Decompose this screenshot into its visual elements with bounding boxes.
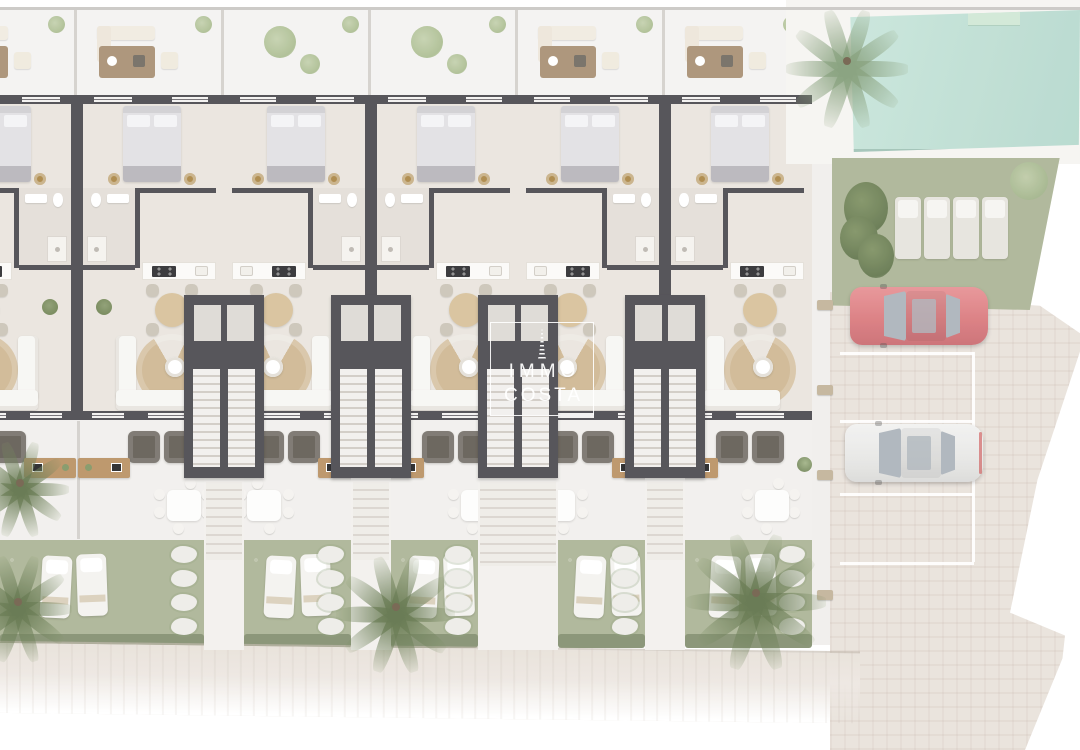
lawn-pad — [982, 197, 1008, 259]
bed-blanket — [561, 166, 619, 182]
palm-tree — [0, 555, 70, 650]
terrace-chair — [577, 507, 588, 518]
sliding-door — [0, 413, 6, 418]
bed-blanket — [123, 166, 181, 182]
terrace-chair — [448, 489, 459, 500]
terrace-armchair — [716, 431, 748, 463]
shrub — [195, 16, 212, 33]
double-bed — [123, 106, 181, 182]
dining-table — [743, 293, 777, 327]
double-bed — [267, 106, 325, 182]
cooktop — [446, 266, 470, 277]
stair-flight — [634, 369, 661, 467]
lawn-pad — [953, 197, 979, 259]
coffee-table — [263, 357, 283, 377]
terrace-armchair — [288, 431, 320, 463]
bed-blanket — [0, 166, 31, 182]
terrace-armchair — [582, 431, 614, 463]
pillow — [592, 115, 615, 127]
shower — [635, 236, 655, 262]
kitchen-sink — [783, 266, 796, 276]
outdoor-armchair — [161, 52, 178, 69]
bathroom — [313, 188, 365, 268]
terrace-chair — [252, 478, 263, 489]
bathroom-sink — [319, 194, 341, 203]
bed-headboard — [561, 106, 619, 113]
terrace-chair — [742, 489, 753, 500]
terrace-chair — [467, 523, 478, 534]
stepping-stones — [171, 546, 199, 638]
stair-flight — [228, 369, 255, 467]
terrace-chair — [577, 489, 588, 500]
bed-headboard — [0, 106, 31, 113]
nightstand — [34, 173, 46, 185]
nightstand — [772, 173, 784, 185]
potted-plant — [42, 299, 58, 315]
toilet — [385, 193, 395, 207]
potted-plant — [96, 299, 112, 315]
parking-stall-line — [840, 493, 974, 496]
coffee-table — [753, 357, 773, 377]
dining-chair — [289, 284, 302, 297]
shower — [47, 236, 67, 262]
kitchen-sink — [195, 266, 208, 276]
terrace-table — [167, 490, 201, 521]
stair-landing — [635, 305, 695, 341]
outdoor-armchair — [749, 52, 766, 69]
shrub — [264, 26, 296, 58]
terrace-chair — [448, 507, 459, 518]
parking-stall-line — [840, 420, 974, 423]
car-mirror — [875, 421, 882, 426]
nightstand — [478, 173, 490, 185]
cooktop — [272, 266, 296, 277]
kitchen-sink — [489, 266, 502, 276]
dining-chair — [289, 323, 302, 336]
parked-car — [845, 424, 983, 482]
street-furniture — [817, 300, 833, 310]
car-sunroof — [907, 436, 931, 470]
cooktop — [0, 266, 2, 277]
dining-chair — [440, 323, 453, 336]
interior-wall — [377, 265, 429, 270]
pillow — [565, 115, 588, 127]
double-bed — [561, 106, 619, 182]
roof-terrace — [0, 8, 77, 95]
terrace-chair — [185, 478, 196, 489]
terrace-table — [247, 490, 281, 521]
car-windshield — [884, 291, 906, 341]
pillow — [271, 115, 294, 127]
window — [682, 97, 720, 102]
window — [92, 413, 124, 418]
interior-wall — [308, 188, 313, 268]
street-furniture — [817, 385, 833, 395]
bathroom-sink — [695, 194, 717, 203]
roof-terrace-row — [0, 8, 820, 95]
interior-wall — [313, 265, 365, 270]
sofa-chaise — [256, 390, 332, 410]
stair-core — [184, 295, 264, 478]
stepping-stone — [171, 594, 197, 611]
terrace-plant — [797, 457, 812, 472]
bed-blanket — [267, 166, 325, 182]
outdoor-armchair — [14, 52, 31, 69]
walkway-steps — [353, 482, 389, 560]
stepping-stone — [171, 618, 197, 635]
dining-set — [738, 288, 782, 332]
double-bed — [417, 106, 475, 182]
bathroom — [671, 188, 723, 268]
outdoor-rug — [540, 46, 596, 78]
stair-landing — [341, 305, 401, 341]
conifer-tree — [840, 182, 896, 282]
pillow — [742, 115, 765, 127]
party-wall — [77, 95, 83, 420]
private-garden — [244, 540, 351, 640]
bathroom-sink — [107, 194, 129, 203]
watermark-line2: COSTA — [491, 385, 593, 407]
sofa-chaise — [0, 390, 38, 410]
pillow — [154, 115, 177, 127]
parked-car — [850, 287, 988, 345]
bed-headboard — [123, 106, 181, 113]
kitchen-sink — [240, 266, 253, 276]
pillow — [715, 115, 738, 127]
window — [172, 97, 208, 102]
car-mirror — [880, 284, 887, 289]
interior-wall — [83, 265, 135, 270]
bed-headboard — [267, 106, 325, 113]
coffee-table — [165, 357, 185, 377]
sliding-door — [736, 413, 784, 418]
immocosta-watermark: IMMO COSTA — [490, 322, 594, 416]
pillow — [421, 115, 444, 127]
nightstand — [108, 173, 120, 185]
dining-chair — [146, 323, 159, 336]
stepping-stone — [612, 546, 638, 563]
dining-chair — [734, 284, 747, 297]
site-boundary-line — [0, 7, 1080, 10]
stepping-stone — [171, 546, 197, 563]
sofa-chaise — [116, 390, 192, 410]
terrace-chair — [264, 523, 275, 534]
bed-headboard — [711, 106, 769, 113]
shrub — [342, 16, 359, 33]
sun-lounger — [574, 555, 607, 618]
interior-wall — [14, 188, 19, 268]
window — [388, 97, 426, 102]
shrub — [489, 16, 506, 33]
terrace-armchair — [422, 431, 454, 463]
window — [610, 97, 648, 102]
cooktop — [740, 266, 764, 277]
terrace-dining-set — [236, 483, 294, 529]
pillow — [127, 115, 150, 127]
parking-area — [830, 292, 1080, 750]
stair-flight — [340, 369, 367, 467]
outdoor-armchair — [602, 52, 619, 69]
window — [94, 97, 132, 102]
terrace-chair — [789, 507, 800, 518]
interior-wall — [671, 265, 723, 270]
bathroom — [83, 188, 135, 268]
stepping-stone — [612, 594, 638, 611]
stair-core — [331, 295, 411, 478]
outdoor-rug — [0, 46, 8, 78]
interior-wall — [19, 265, 71, 270]
bathroom-sink — [25, 194, 47, 203]
terrace-chair — [154, 489, 165, 500]
palm-trunk — [16, 479, 24, 487]
terrace-armchair — [128, 431, 160, 463]
stepping-stones — [612, 546, 640, 638]
terrace-table — [755, 490, 789, 521]
street-furniture — [817, 470, 833, 480]
bed-headboard — [417, 106, 475, 113]
nightstand — [402, 173, 414, 185]
nightstand — [328, 173, 340, 185]
toilet — [679, 193, 689, 207]
car-rear-window — [946, 294, 960, 338]
dining-chair — [0, 284, 8, 297]
shrub — [48, 16, 65, 33]
shrub — [636, 16, 653, 33]
outdoor-rug — [99, 46, 155, 78]
pillow — [298, 115, 321, 127]
interior-wall — [723, 188, 728, 268]
window — [534, 97, 570, 102]
dining-chair — [734, 323, 747, 336]
bed-blanket — [711, 166, 769, 182]
shower — [341, 236, 361, 262]
shower — [675, 236, 695, 262]
bbq-table — [78, 458, 130, 478]
stair-flight — [193, 369, 220, 467]
toilet — [641, 193, 651, 207]
walkway-steps — [480, 482, 556, 566]
car-mirror — [875, 480, 882, 485]
palm-trunk — [752, 589, 760, 597]
stair-flight — [375, 369, 402, 467]
kitchen-sink — [534, 266, 547, 276]
toilet — [347, 193, 357, 207]
parking-stall-line — [840, 352, 974, 355]
toilet — [91, 193, 101, 207]
garden-walkway — [478, 478, 558, 650]
interior-wall — [602, 188, 607, 268]
shower — [87, 236, 107, 262]
palm-tree — [788, 8, 906, 114]
nightstand — [622, 173, 634, 185]
bathroom — [377, 188, 429, 268]
terrace-armchair — [752, 431, 784, 463]
window — [22, 97, 60, 102]
stepping-stone — [612, 618, 638, 635]
dining-table — [259, 293, 293, 327]
bed-blanket — [417, 166, 475, 182]
sun-lounger — [264, 555, 297, 618]
site-plan-canvas: IMMO COSTA — [0, 0, 1080, 750]
dining-chair — [773, 284, 786, 297]
terrace-chair — [283, 489, 294, 500]
watermark-line1: IMMO — [491, 361, 593, 383]
terrace-chair — [558, 523, 569, 534]
dining-chair — [146, 284, 159, 297]
outdoor-sofa — [0, 26, 8, 40]
shrub — [447, 54, 467, 74]
interior-wall — [607, 265, 659, 270]
shrub — [411, 26, 443, 58]
sun-lounger — [76, 553, 108, 616]
nightstand — [696, 173, 708, 185]
pillow — [4, 115, 27, 127]
toilet — [53, 193, 63, 207]
palm-trunk — [14, 598, 22, 606]
stepping-stone — [612, 570, 638, 587]
nightstand — [184, 173, 196, 185]
interior-wall — [429, 188, 434, 268]
dining-set — [0, 288, 4, 332]
car-windshield — [879, 428, 901, 478]
terrace-dining-set — [742, 483, 800, 529]
shrub — [300, 54, 320, 74]
stair-core — [625, 295, 705, 478]
roof-terrace — [518, 8, 665, 95]
nightstand — [252, 173, 264, 185]
dining-chair — [440, 284, 453, 297]
palm-trunk — [392, 603, 400, 611]
window — [240, 97, 276, 102]
pillow — [448, 115, 471, 127]
sofa-chaise — [704, 390, 780, 410]
sofa-chaise — [410, 390, 486, 410]
garden-walkway — [645, 478, 685, 650]
grill-icon — [111, 463, 122, 472]
double-bed — [711, 106, 769, 182]
terrace-chair — [283, 507, 294, 518]
car-taillight — [979, 432, 982, 474]
dining-chair — [583, 284, 596, 297]
roof-terrace — [77, 8, 224, 95]
bathroom-sink — [401, 194, 423, 203]
bathroom-sink — [613, 194, 635, 203]
garden-walkway — [204, 478, 244, 650]
dining-chair — [773, 323, 786, 336]
bathroom — [19, 188, 71, 268]
dining-chair — [0, 323, 8, 336]
window — [466, 97, 502, 102]
roof-terrace — [224, 8, 371, 95]
window — [30, 413, 62, 418]
coffee-table — [459, 357, 479, 377]
interior-wall — [135, 188, 140, 268]
car-sunroof — [912, 299, 936, 333]
walkway-steps — [647, 482, 683, 560]
roof-terrace — [371, 8, 518, 95]
walkway-steps — [206, 482, 242, 560]
bathroom — [607, 188, 659, 268]
palm-tree — [338, 555, 453, 659]
terrace-chair — [742, 507, 753, 518]
palm-tree — [0, 440, 67, 526]
lawn-pad — [924, 197, 950, 259]
nightstand — [546, 173, 558, 185]
double-bed — [0, 106, 31, 182]
terrace-chair — [154, 507, 165, 518]
terrace-chair — [789, 489, 800, 500]
outdoor-rug — [687, 46, 743, 78]
terrace-chair — [773, 478, 784, 489]
lawn-pad — [895, 197, 921, 259]
private-garden — [558, 540, 645, 640]
car-rear-window — [941, 431, 955, 475]
plant-pot — [85, 464, 92, 471]
terrace-chair — [173, 523, 184, 534]
cooktop — [566, 266, 590, 277]
palm-tree — [688, 532, 823, 654]
lighthouse-icon — [534, 329, 550, 359]
bush — [1010, 162, 1048, 200]
car-mirror — [880, 343, 887, 348]
shower — [381, 236, 401, 262]
window — [316, 97, 354, 102]
cooktop — [152, 266, 176, 277]
stair-landing — [194, 305, 254, 341]
stepping-stone — [171, 570, 197, 587]
stair-flight — [669, 369, 696, 467]
parking-stall-line — [840, 562, 974, 565]
